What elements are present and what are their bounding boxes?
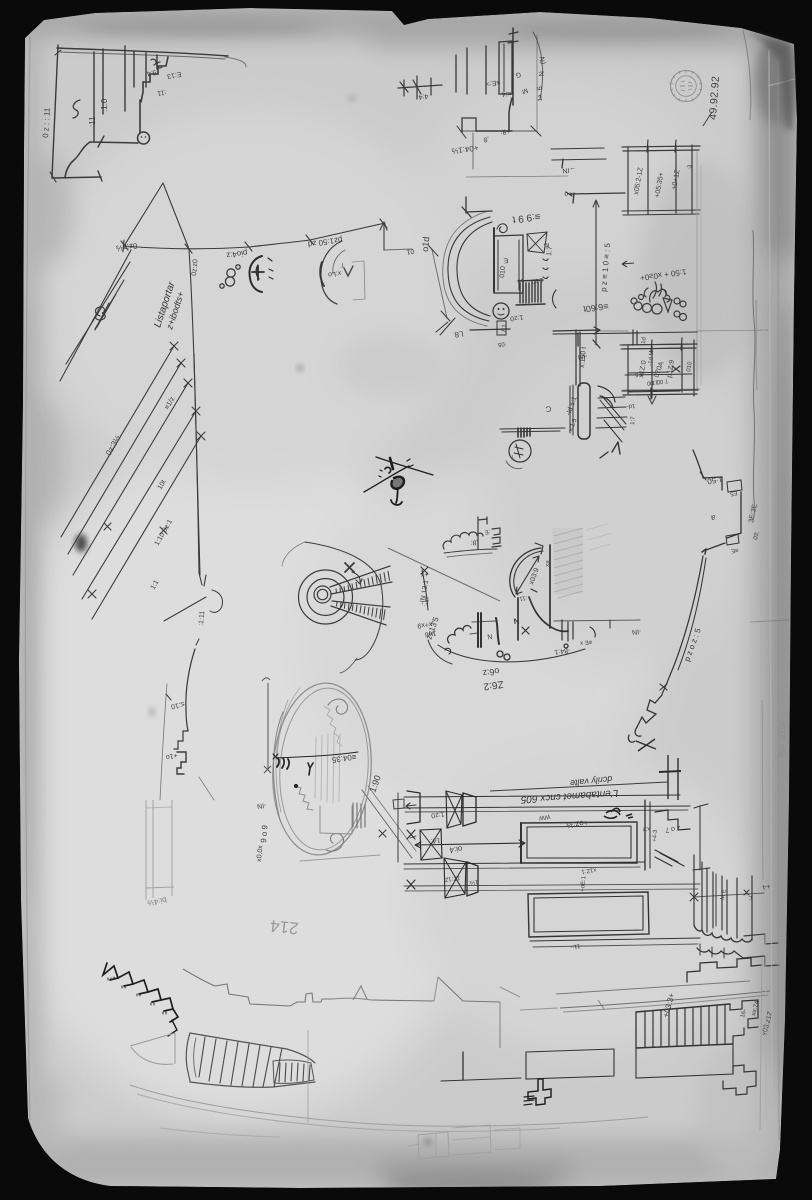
- svg-text:+4: +4: [762, 882, 771, 890]
- svg-text:x0,0x: x0,0x: [256, 844, 264, 862]
- svg-text:N: N: [487, 632, 493, 640]
- svg-text:4:4: 4:4: [418, 92, 429, 100]
- svg-text:,8: ,8: [483, 135, 490, 143]
- svg-text:+8:: +8:: [500, 127, 511, 135]
- svg-text::11: :11: [518, 594, 527, 601]
- svg-text:1:7: 1:7: [630, 416, 637, 425]
- svg-text:≡:5: ≡:5: [634, 370, 644, 377]
- svg-text:1a: 1a: [537, 94, 544, 102]
- svg-text:0z:z0: 0z:z0: [191, 259, 199, 276]
- svg-text:14:: 14:: [430, 836, 441, 844]
- svg-text:6: 6: [537, 86, 544, 91]
- svg-text:01: 01: [406, 247, 415, 255]
- svg-text:x≡: x≡: [545, 560, 552, 567]
- svg-text:+4-3: +4-3: [652, 829, 659, 842]
- svg-text:L8: L8: [453, 329, 464, 339]
- svg-text:214: 214: [269, 916, 299, 938]
- svg-text:-IN: -IN: [256, 801, 266, 809]
- svg-text:x:z: x:z: [642, 825, 650, 832]
- svg-text:1d: 1d: [641, 337, 648, 344]
- svg-text::E: :E: [484, 528, 490, 535]
- svg-text:oi:4: oi:4: [448, 844, 463, 855]
- svg-text:(N: (N: [539, 56, 547, 64]
- svg-text:9 o 9: 9 o 9: [259, 824, 270, 843]
- svg-text:1:7: 1:7: [546, 246, 554, 256]
- svg-text:+o: +o: [564, 189, 573, 197]
- svg-text:010: 010: [499, 266, 507, 278]
- svg-text::05: :05: [497, 340, 507, 347]
- svg-text:≡i4: ≡i4: [501, 89, 512, 97]
- svg-text:81: 81: [501, 324, 509, 332]
- svg-text::1:0: :1:0: [100, 98, 109, 112]
- svg-text:-IN: -IN: [631, 627, 641, 635]
- svg-text:1d-: 1d-: [626, 402, 635, 409]
- svg-text:o1d: o1d: [420, 236, 431, 252]
- svg-text:,8:: ,8:: [470, 538, 479, 546]
- svg-text::11: :11: [88, 116, 97, 127]
- svg-text:N: N: [539, 71, 546, 77]
- svg-text::1:11: :1:11: [198, 610, 206, 626]
